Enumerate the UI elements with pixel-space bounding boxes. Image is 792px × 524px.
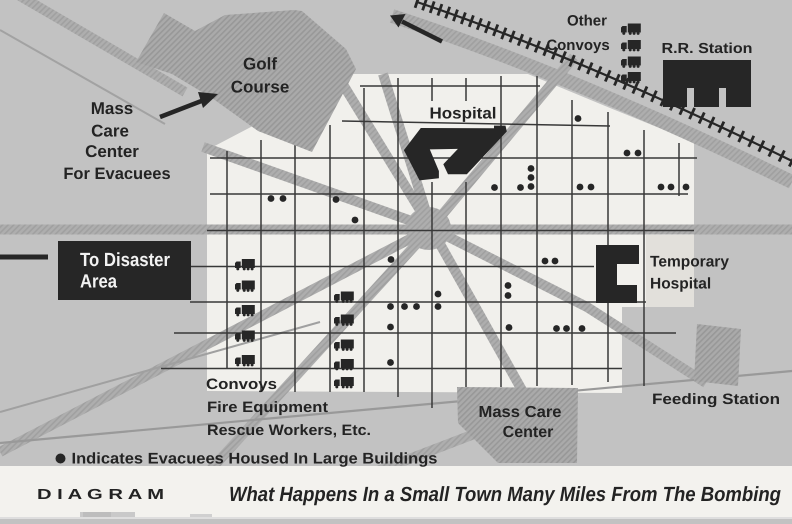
svg-text:Center: Center [85,142,139,161]
svg-text:Care: Care [91,122,129,141]
svg-text:R.R. Station: R.R. Station [662,41,753,57]
svg-text:What Happens In a Small Town M: What Happens In a Small Town Many Miles … [229,483,781,506]
svg-text:Course: Course [231,78,290,97]
svg-text:Indicates Evacuees Housed In L: Indicates Evacuees Housed In Large Build… [72,451,438,468]
svg-text:Fire Equipment: Fire Equipment [207,399,328,416]
svg-text:Hospital: Hospital [430,106,497,123]
svg-text:Center: Center [503,424,554,441]
svg-text:Golf: Golf [243,55,277,74]
svg-text:Area: Area [80,272,117,293]
svg-text:Convoys: Convoys [206,376,277,393]
svg-text:Convoys: Convoys [546,37,609,54]
svg-text:D I A G R A M: D I A G R A M [37,487,164,503]
svg-text:Feeding Station: Feeding Station [652,391,780,408]
svg-text:Mass: Mass [91,99,134,118]
svg-text:For Evacuees: For Evacuees [63,165,170,183]
svg-text:Temporary: Temporary [650,254,729,271]
svg-text:Hospital: Hospital [650,276,711,293]
svg-text:Rescue Workers, Etc.: Rescue Workers, Etc. [207,422,371,439]
svg-text:Other: Other [567,13,607,30]
svg-text:To Disaster: To Disaster [80,250,171,271]
svg-text:Mass Care: Mass Care [479,404,562,421]
